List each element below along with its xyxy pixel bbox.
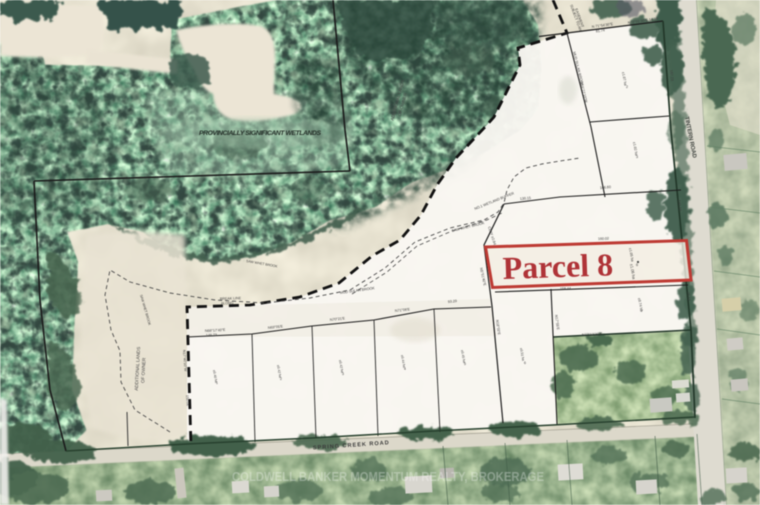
svg-text:2: 2 (280, 377, 282, 381)
svg-text:PROVINCIALLY SIGNIFICANT WETLA: PROVINCIALLY SIGNIFICANT WETLANDS (199, 130, 321, 137)
svg-text:6: 6 (636, 263, 638, 267)
svg-text:3: 3 (342, 372, 344, 376)
svg-text:150.06: 150.06 (185, 395, 190, 406)
svg-text:6: 6 (524, 361, 526, 365)
svg-text:ALONG: ALONG (221, 301, 234, 305)
svg-text:146.73: 146.73 (206, 333, 217, 338)
svg-text:158.44: 158.44 (560, 287, 571, 291)
svg-text:3: 3 (636, 155, 638, 159)
svg-text:160.02: 160.02 (598, 237, 609, 241)
svg-text:1: 1 (216, 381, 218, 385)
svg-text:7: 7 (641, 309, 643, 313)
svg-text:COLDWELL BANKER MOMENTUM REALT: COLDWELL BANKER MOMENTUM REALTY, BROKERA… (232, 469, 544, 484)
svg-text:5: 5 (464, 362, 466, 366)
svg-text:4: 4 (404, 367, 406, 371)
svg-text:Parcel 8: Parcel 8 (502, 246, 614, 286)
svg-text:2: 2 (626, 85, 628, 89)
